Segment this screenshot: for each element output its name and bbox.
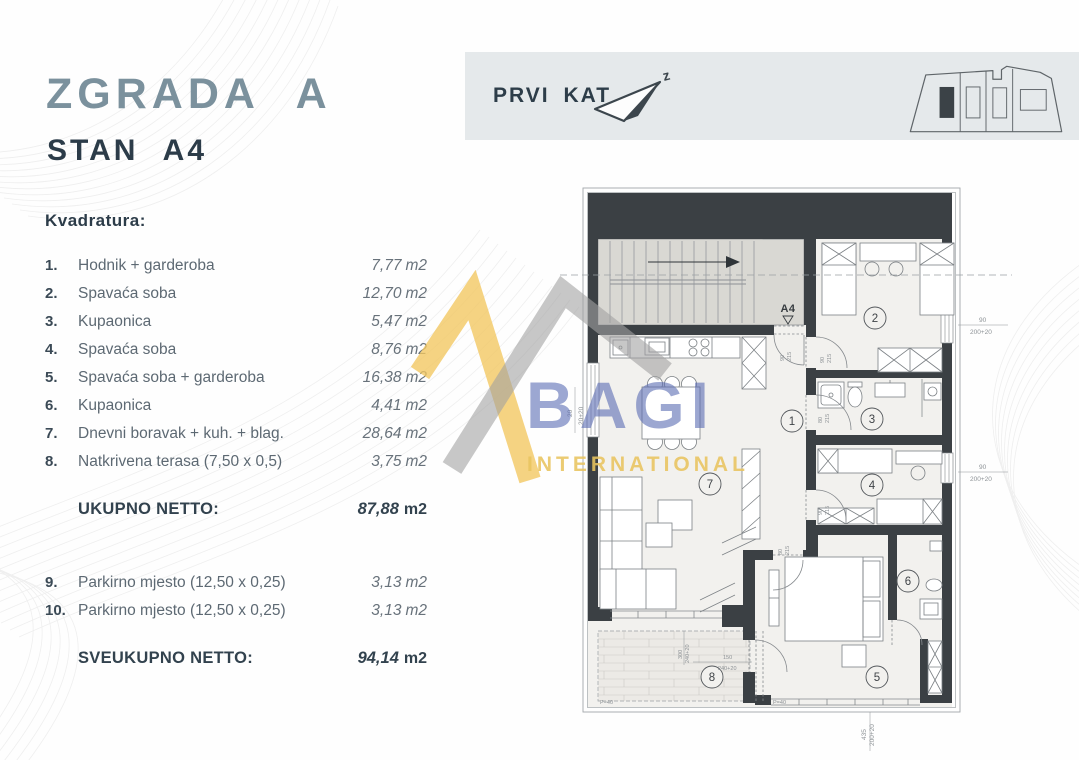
svg-text:2: 2 [872,313,878,325]
dim-window-right-mid: 90 200+20 [958,464,1008,483]
item-number: 1. [45,257,78,274]
net-total-value: 87,88 [358,500,399,519]
svg-text:90: 90 [820,357,826,363]
svg-text:90: 90 [780,355,786,361]
svg-text:90: 90 [979,317,987,324]
stairwell [598,229,804,325]
item-label: Spavaća soba [78,341,371,359]
item-number: 6. [45,397,78,414]
parking-list: 9. Parkirno mjesto (12,50 x 0,25) 3,13 m… [45,574,427,630]
svg-text:200+20: 200+20 [970,476,992,483]
north-letter: z [661,67,672,84]
building-section-a-marker [940,87,955,118]
svg-text:80: 80 [818,417,824,423]
list-item: 7. Dnevni boravak + kuh. + blag. 28,64 m… [45,425,427,453]
svg-text:240+20: 240+20 [718,666,737,672]
item-unit: m2 [405,602,427,620]
unit-marker-label: A4 [780,303,795,315]
room-badge-1: 1 [781,410,803,432]
dim-p-right: P=40 [773,700,786,706]
item-number: 9. [45,574,78,591]
list-item: 2. Spavaća soba 12,70 m2 [45,285,427,313]
item-unit: m2 [405,341,427,359]
dim-window-right-top: 90 200+20 [958,317,1008,336]
svg-text:3: 3 [869,414,875,426]
grand-total-value: 94,14 [358,649,399,668]
item-number: 5. [45,369,78,386]
building-outline-icon [900,61,1072,137]
svg-text:6: 6 [905,576,911,588]
svg-text:215: 215 [785,546,791,555]
item-label: Spavaća soba [78,285,363,303]
svg-text:215: 215 [787,352,793,361]
item-unit: m2 [405,313,427,331]
item-label: Kupaonica [78,397,371,415]
svg-text:1: 1 [789,416,795,428]
svg-text:7: 7 [707,479,713,491]
item-value: 12,70 [363,285,402,303]
list-item: 9. Parkirno mjesto (12,50 x 0,25) 3,13 m… [45,574,427,602]
svg-text:300: 300 [678,650,684,659]
item-number: 2. [45,285,78,302]
list-item: 5. Spavaća soba + garderoba 16,38 m2 [45,369,427,397]
item-number: 8. [45,453,78,470]
room-badge-3: 3 [861,408,883,430]
list-item: 8. Natkrivena terasa (7,50 x 0,5) 3,75 m… [45,453,427,481]
floor-header-bar: PRVI KAT z [465,52,1079,140]
item-unit: m2 [405,574,427,592]
net-total-unit: m2 [404,501,427,519]
dim-p-left: P=40 [600,700,613,706]
item-label: Kupaonica [78,313,371,331]
grand-total-label: SVEUKUPNO NETTO: [78,649,358,668]
svg-text:90: 90 [979,464,987,471]
grand-total-unit: m2 [404,650,427,668]
grand-total-row: SVEUKUPNO NETTO: 94,14 m2 [45,649,427,668]
item-unit: m2 [405,285,427,303]
dim-window-left: 20 20+20 [567,387,585,433]
svg-text:8: 8 [709,672,715,684]
list-item: 10. Parkirno mjesto (12,50 x 0,25) 3,13 … [45,602,427,630]
item-value: 7,77 [371,257,401,275]
list-item: 6. Kupaonica 4,41 m2 [45,397,427,425]
svg-text:200+20: 200+20 [970,329,992,336]
svg-text:215: 215 [827,354,833,363]
item-value: 16,38 [363,369,402,387]
item-value: 3,75 [371,453,401,471]
list-item: 1. Hodnik + garderoba 7,77 m2 [45,257,427,285]
svg-text:90: 90 [818,509,824,515]
kvadratura-heading: Kvadratura: [45,211,146,231]
svg-text:80: 80 [778,549,784,555]
dim-bottom: 435 200+20 [861,712,876,751]
floor-plan: A4 1 2 3 4 5 6 7 8 [560,185,1079,760]
item-unit: m2 [405,257,427,275]
net-total-label: UKUPNO NETTO: [78,500,358,519]
item-value: 28,64 [363,425,402,443]
svg-text:150: 150 [723,655,732,661]
building-title: ZGRADA A [46,70,332,119]
item-unit: m2 [405,453,427,471]
item-label: Dnevni boravak + kuh. + blag. [78,425,363,443]
room-area-list: 1. Hodnik + garderoba 7,77 m2 2. Spavaća… [45,257,427,481]
item-value: 5,47 [371,313,401,331]
item-number: 4. [45,341,78,358]
svg-text:4: 4 [869,480,876,492]
item-label: Parkirno mjesto (12,50 x 0,25) [78,602,371,620]
svg-text:200+20: 200+20 [869,724,876,746]
item-number: 7. [45,425,78,442]
list-item: 4. Spavaća soba 8,76 m2 [45,341,427,369]
room-badge-6: 6 [897,570,919,592]
floorplan-sheet: ZGRADA A STAN A4 Kvadratura: 1. Hodnik +… [0,0,1079,760]
svg-text:5: 5 [874,672,880,684]
svg-text:215: 215 [825,506,831,515]
north-arrow-icon: z [588,66,683,128]
item-value: 3,13 [371,602,401,620]
item-value: 3,13 [371,574,401,592]
item-unit: m2 [405,425,427,443]
svg-text:20: 20 [567,409,574,417]
svg-text:20+20: 20+20 [578,406,585,425]
item-value: 4,41 [371,397,401,415]
list-item: 3. Kupaonica 5,47 m2 [45,313,427,341]
item-label: Hodnik + garderoba [78,257,371,275]
room-badge-7: 7 [699,473,721,495]
room-badge-5: 5 [866,666,888,688]
item-unit: m2 [405,397,427,415]
svg-text:215: 215 [825,414,831,423]
item-number: 3. [45,313,78,330]
svg-text:240+20: 240+20 [685,644,691,663]
item-number: 10. [45,602,78,619]
item-label: Spavaća soba + garderoba [78,369,363,387]
net-total-row: UKUPNO NETTO: 87,88 m2 [45,500,427,519]
svg-text:435: 435 [861,729,868,740]
unit-title: STAN A4 [47,134,207,168]
item-value: 8,76 [371,341,401,359]
item-label: Natkrivena terasa (7,50 x 0,5) [78,453,371,471]
item-unit: m2 [405,369,427,387]
item-label: Parkirno mjesto (12,50 x 0,25) [78,574,371,592]
room-badge-4: 4 [861,474,883,496]
room-badge-2: 2 [864,307,886,329]
